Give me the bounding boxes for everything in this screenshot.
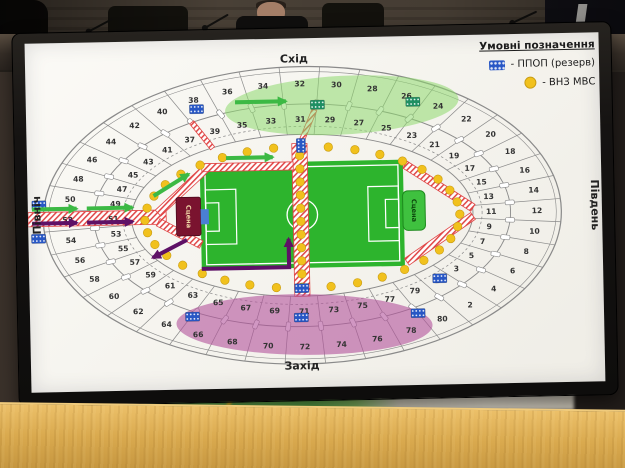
svg-text:79: 79 [410,286,421,295]
svg-text:42: 42 [129,121,140,130]
compass-south-label: Південь [588,175,602,235]
svg-text:80: 80 [437,314,448,323]
svg-text:40: 40 [157,107,168,116]
monitor: СценаСцена123456789101112131415161718192… [11,21,618,407]
ppop-post-icon [406,97,420,106]
svg-text:32: 32 [294,79,305,88]
mvs-dot-icon [524,77,536,89]
svg-text:24: 24 [433,102,444,111]
svg-text:38: 38 [188,96,199,105]
svg-text:10: 10 [529,227,540,236]
svg-text:29: 29 [325,115,336,124]
svg-text:18: 18 [505,147,516,156]
svg-text:50: 50 [65,195,76,204]
svg-text:37: 37 [184,135,195,144]
svg-text:30: 30 [331,80,342,89]
svg-text:2: 2 [467,300,472,309]
svg-text:28: 28 [367,84,378,93]
svg-text:72: 72 [300,342,311,351]
svg-text:44: 44 [106,137,117,146]
svg-text:7: 7 [480,237,485,246]
svg-text:77: 77 [384,295,395,304]
svg-text:45: 45 [128,170,139,179]
svg-text:63: 63 [187,291,198,300]
legend: Умовні позначення - ППОП (резерв) - ВНЗ … [479,38,596,89]
svg-text:58: 58 [89,275,100,284]
ppop-post-icon [294,313,308,322]
ppop-post-icon [433,274,447,283]
svg-text:4: 4 [491,284,496,293]
svg-text:12: 12 [532,206,543,215]
svg-text:31: 31 [295,115,306,124]
svg-text:21: 21 [429,140,440,149]
svg-text:11: 11 [486,207,497,216]
svg-text:41: 41 [162,145,173,154]
svg-text:69: 69 [269,306,280,315]
svg-text:36: 36 [222,87,233,96]
svg-text:14: 14 [528,186,539,195]
svg-text:64: 64 [161,320,172,329]
svg-text:56: 56 [75,256,86,265]
svg-text:43: 43 [143,157,154,166]
svg-text:61: 61 [165,281,176,290]
svg-text:62: 62 [133,307,144,316]
compass-north-label: Північ [30,185,44,245]
svg-text:23: 23 [406,131,417,140]
svg-text:33: 33 [265,116,276,125]
svg-text:59: 59 [145,270,156,279]
svg-text:13: 13 [483,192,494,201]
ppop-post-icon [185,312,199,321]
svg-text:57: 57 [129,258,140,267]
svg-text:39: 39 [209,127,220,136]
svg-text:74: 74 [336,340,347,349]
meeting-room-photo: СценаСцена123456789101112131415161718192… [0,0,625,468]
legend-title: Умовні позначення [479,38,595,52]
wooden-table [0,402,625,468]
svg-text:55: 55 [118,244,129,253]
svg-text:19: 19 [449,151,460,160]
legend-item-ppop: - ППОП (резерв) [479,57,595,70]
ppop-grid-icon [489,60,505,70]
ppop-post-icon [296,138,305,152]
svg-text:60: 60 [109,292,120,301]
svg-text:22: 22 [461,114,472,123]
ppop-post-icon [411,308,425,317]
svg-text:46: 46 [87,155,98,164]
compass-east-label: Схід [264,52,324,66]
ppop-post-icon [310,100,324,109]
svg-text:15: 15 [476,177,487,186]
svg-text:Сцена: Сцена [184,205,192,228]
svg-text:5: 5 [469,251,474,260]
legend-item-mvs: - ВНЗ МВС [480,75,596,89]
svg-text:9: 9 [486,222,491,231]
compass-west-label: Захід [272,359,332,373]
svg-text:54: 54 [66,236,77,245]
svg-text:68: 68 [227,337,238,346]
svg-text:34: 34 [258,82,269,91]
ppop-post-icon [295,283,309,292]
ppop-post-icon [189,104,203,113]
svg-text:73: 73 [328,305,339,314]
svg-text:67: 67 [240,303,251,312]
svg-text:35: 35 [237,121,248,130]
svg-text:78: 78 [406,326,417,335]
svg-text:20: 20 [485,130,496,139]
svg-text:6: 6 [510,266,515,275]
svg-text:8: 8 [524,247,529,256]
svg-text:66: 66 [193,330,204,339]
svg-text:27: 27 [353,118,364,127]
svg-text:75: 75 [357,301,368,310]
svg-text:47: 47 [117,185,128,194]
green-sector-zone [224,70,461,141]
svg-text:65: 65 [213,298,224,307]
svg-text:3: 3 [454,264,459,273]
svg-text:53: 53 [111,229,122,238]
svg-text:76: 76 [372,334,383,343]
svg-text:25: 25 [381,123,392,132]
svg-text:16: 16 [519,166,530,175]
svg-text:Сцена: Сцена [410,199,418,222]
svg-text:70: 70 [263,341,274,350]
svg-text:17: 17 [464,164,475,173]
monitor-screen: СценаСцена123456789101112131415161718192… [25,32,606,392]
svg-text:48: 48 [73,175,84,184]
